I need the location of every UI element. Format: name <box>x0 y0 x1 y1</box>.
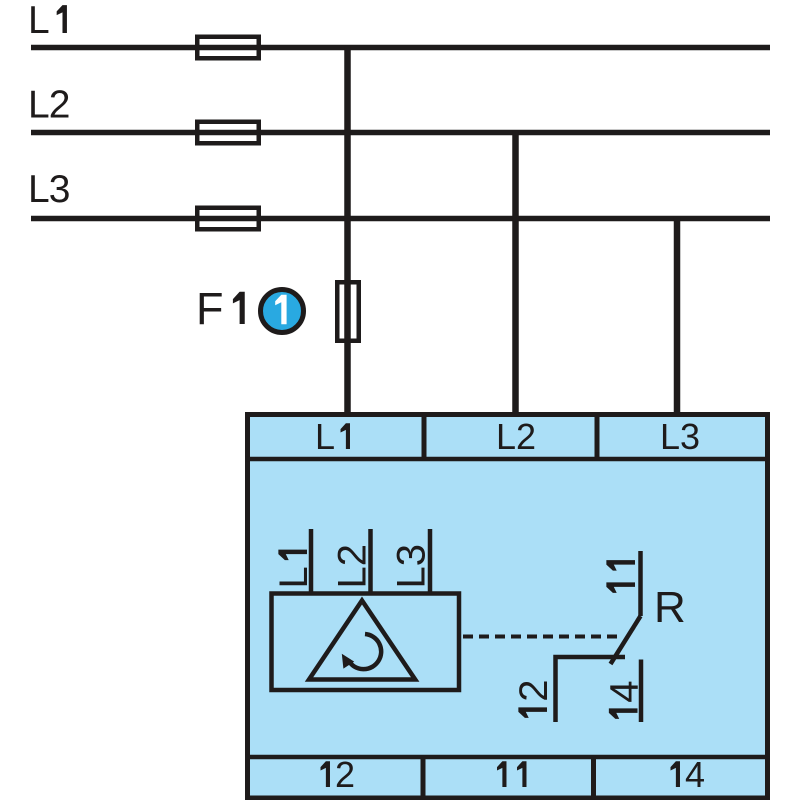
svg-text:R: R <box>654 583 686 632</box>
svg-text:L2: L2 <box>496 416 536 457</box>
svg-text:L3: L3 <box>28 168 69 211</box>
svg-text:L2: L2 <box>28 84 69 127</box>
svg-text:L: L <box>272 566 316 588</box>
svg-text:L2: L2 <box>331 544 375 589</box>
svg-text:2: 2 <box>512 680 556 702</box>
svg-text:L3: L3 <box>660 416 700 457</box>
svg-text:4: 4 <box>685 754 705 795</box>
svg-text:L3: L3 <box>390 544 434 589</box>
svg-text:4: 4 <box>603 681 647 703</box>
svg-text:2: 2 <box>335 754 355 795</box>
svg-text:F: F <box>196 283 224 334</box>
svg-text:L: L <box>315 416 335 457</box>
svg-text:L: L <box>28 0 50 42</box>
